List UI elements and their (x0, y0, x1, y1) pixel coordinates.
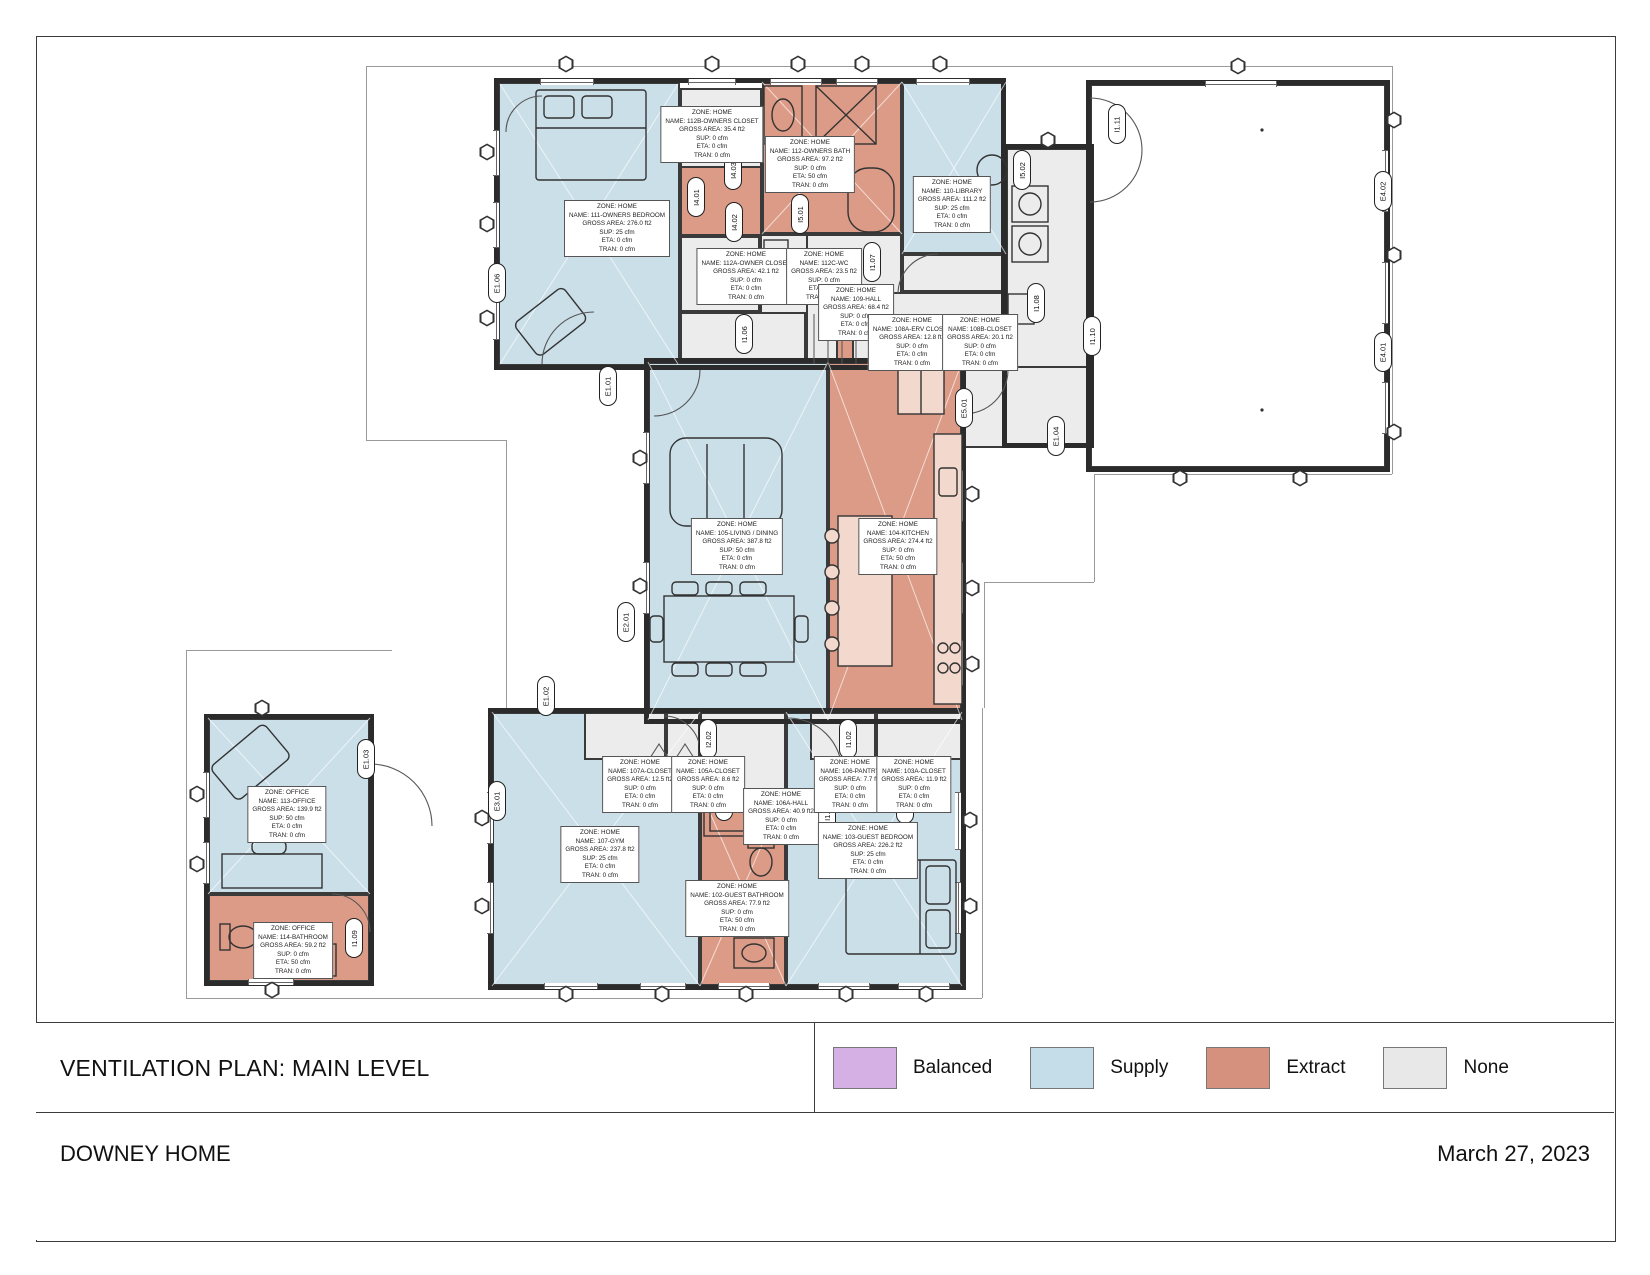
legend-item-balanced: Balanced (833, 1047, 992, 1089)
plan-title: VENTILATION PLAN: MAIN LEVEL (36, 1023, 815, 1113)
door-arc (654, 370, 700, 416)
door-arc (542, 312, 594, 364)
marker-tag: E1.01 (599, 366, 617, 406)
legend-swatch-supply (1030, 1047, 1094, 1089)
marker-tag: I5.02 (1013, 150, 1031, 190)
legend-item-supply: Supply (1030, 1047, 1168, 1089)
legend-label-none: None (1463, 1057, 1508, 1079)
marker-tag: E3.01 (488, 781, 506, 821)
zone-label-owners-bedroom: ZONE: HOMENAME: 111-OWNERS BEDROOMGROSS … (564, 200, 670, 257)
zone-label-guest-bedroom: ZONE: HOMENAME: 103-GUEST BEDROOMGROSS A… (818, 822, 918, 879)
marker-tag: I1.11 (1108, 104, 1126, 144)
sheet-date: March 27, 2023 (1437, 1141, 1590, 1240)
marker-tag: E5.01 (955, 388, 973, 428)
marker-tag: E1.06 (488, 263, 506, 303)
door-arc (898, 254, 938, 294)
zone-label-pantry: ZONE: HOMENAME: 106-PANTRYGROSS AREA: 7.… (814, 756, 886, 813)
project-row: DOWNEY HOME March 27, 2023 (36, 1112, 1614, 1240)
zone-label-office-bathroom: ZONE: OFFICENAME: 114-BATHROOMGROSS AREA… (253, 922, 333, 979)
marker-tag: I1.09 (345, 918, 363, 958)
zone-label-office: ZONE: OFFICENAME: 113-OFFICEGROSS AREA: … (247, 786, 326, 843)
zone-label-guest-bathroom: ZONE: HOMENAME: 102-GUEST BATHROOMGROSS … (685, 880, 789, 937)
zone-label-owners-closet-112b: ZONE: HOMENAME: 112B-OWNERS CLOSETGROSS … (660, 106, 763, 163)
marker-tag: E2.01 (617, 602, 635, 642)
title-block-row: VENTILATION PLAN: MAIN LEVEL Balanced Su… (36, 1022, 1614, 1113)
legend: Balanced Supply Extract None (815, 1023, 1614, 1113)
marker-tag: E1.03 (357, 739, 375, 779)
legend-label-extract: Extract (1286, 1057, 1345, 1079)
marker-tag: I1.02 (839, 719, 857, 759)
floor-plan: E1.06 E1.01 I4.01 I4.03 I4.02 I5.01 I1.0… (0, 0, 1650, 1022)
washer-dryer-icon (1012, 186, 1048, 262)
toilet-icon (220, 924, 257, 950)
legend-swatch-extract (1206, 1047, 1270, 1089)
legend-swatch-none (1383, 1047, 1447, 1089)
legend-item-none: None (1383, 1047, 1508, 1089)
marker-tag: I4.01 (687, 177, 705, 217)
marker-tag: I1.10 (1083, 316, 1101, 356)
sofa-icon (670, 438, 782, 526)
zone-label-library: ZONE: HOMENAME: 110-LIBRARYGROSS AREA: 1… (913, 176, 991, 233)
marker-tag: I1.06 (735, 314, 753, 354)
zone-label-closet-107a: ZONE: HOMENAME: 107A-CLOSETGROSS AREA: 1… (602, 756, 678, 813)
zone-label-closet-105a: ZONE: HOMENAME: 105A-CLOSETGROSS AREA: 8… (671, 756, 745, 813)
zone-label-kitchen: ZONE: HOMENAME: 104-KITCHENGROSS AREA: 2… (858, 518, 937, 575)
sink-icon (734, 938, 774, 968)
door-arc (1090, 150, 1142, 202)
garage-column-dots (1260, 128, 1263, 411)
desk-icon (222, 840, 322, 888)
marker-tag: E4.02 (1374, 171, 1392, 211)
marker-tag: I5.01 (791, 194, 809, 234)
zone-label-closet-103a: ZONE: HOMENAME: 103A-CLOSETGROSS AREA: 1… (876, 756, 951, 813)
legend-item-extract: Extract (1206, 1047, 1345, 1089)
zone-label-owner-closet-112a: ZONE: HOMENAME: 112A-OWNER CLOSETGROSS A… (696, 248, 795, 305)
marker-tag: E4.01 (1374, 332, 1392, 372)
legend-swatch-balanced (833, 1047, 897, 1089)
fridge-icon (898, 370, 944, 414)
marker-tag: I1.07 (863, 242, 881, 282)
door-arc (370, 764, 432, 826)
zone-label-gym: ZONE: HOMENAME: 107-GYMGROSS AREA: 237.8… (560, 826, 639, 883)
marker-tag: E1.02 (537, 676, 555, 716)
marker-tag: I2.02 (699, 719, 717, 759)
dining-table-icon (650, 582, 808, 676)
zone-label-closet-108b: ZONE: HOMENAME: 108B-CLOSETGROSS AREA: 2… (942, 314, 1018, 371)
legend-label-supply: Supply (1110, 1057, 1168, 1079)
legend-label-balanced: Balanced (913, 1057, 992, 1079)
project-name: DOWNEY HOME (60, 1141, 231, 1240)
marker-tag: I1.08 (1027, 283, 1045, 323)
zone-label-hall-106a: ZONE: HOMENAME: 106A-HALLGROSS AREA: 40.… (743, 788, 819, 845)
marker-tag: E1.04 (1047, 416, 1065, 456)
zone-label-living-dining: ZONE: HOMENAME: 105-LIVING / DININGGROSS… (691, 518, 783, 575)
marker-tag: I4.02 (725, 202, 743, 242)
armchair-icon (513, 286, 588, 357)
door-arc (664, 716, 700, 752)
zone-label-owners-bath: ZONE: HOMENAME: 112-OWNERS BATHGROSS ARE… (765, 136, 855, 193)
